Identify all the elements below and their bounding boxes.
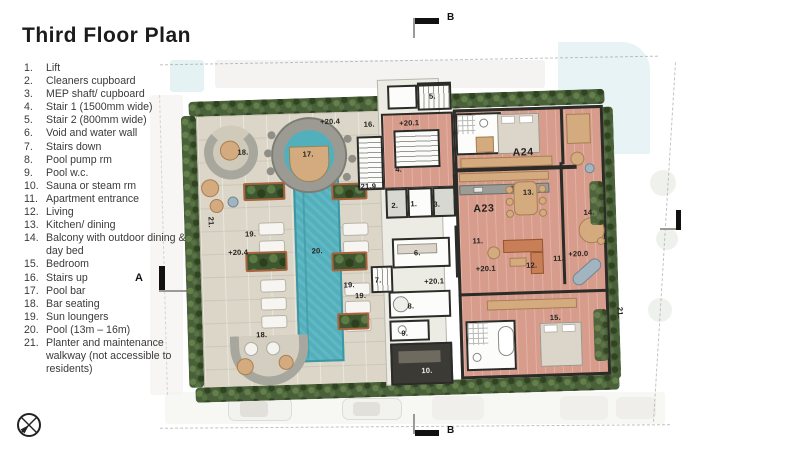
- room-number-label: +20.4: [228, 248, 248, 258]
- room-number-label: 7.: [375, 275, 382, 284]
- room-number-label: 3.: [433, 200, 440, 209]
- legend-item-number: 1.: [24, 62, 46, 75]
- legend-item: 2.Cleaners cupboard: [24, 75, 196, 88]
- room-number-label: 12.: [526, 260, 537, 269]
- legend-item-number: 9.: [24, 167, 46, 180]
- room-number-label: 19.: [245, 229, 256, 238]
- legend-item-text: Void and water wall: [46, 127, 196, 140]
- room-number-label: 18.: [237, 147, 248, 156]
- legend-item-number: 6.: [24, 127, 46, 140]
- section-cut-bar: [415, 18, 439, 24]
- room-number-label: 6.: [414, 248, 421, 257]
- room-number-label: 19.: [355, 291, 366, 300]
- room-number-label: 21.: [616, 307, 625, 318]
- room-number-label: 14.: [583, 208, 594, 217]
- room-number-label: 17.: [302, 149, 313, 158]
- legend-item: 19.Sun loungers: [24, 311, 196, 324]
- floor-plan-drawing: 18.17.+20.416.+20.15.4.+21.92.1.3.21.19.…: [178, 68, 640, 422]
- legend-item-number: 5.: [24, 114, 46, 127]
- legend-item-number: 12.: [24, 206, 46, 219]
- north-compass-icon: [16, 412, 42, 438]
- room-number-label: 18.: [256, 330, 267, 339]
- legend-item-text: Bar seating: [46, 298, 196, 311]
- legend-item-number: 18.: [24, 298, 46, 311]
- room-number-label: 1.: [410, 199, 417, 208]
- room-number-label: +20.1: [399, 118, 419, 128]
- legend-item-number: 19.: [24, 311, 46, 324]
- room-number-label: +21.9: [356, 182, 376, 192]
- legend-item-number: 13.: [24, 219, 46, 232]
- legend-item-number: 7.: [24, 141, 46, 154]
- legend-item-text: Pool pump rm: [46, 154, 196, 167]
- legend-item-text: Living: [46, 206, 196, 219]
- legend-item-number: 11.: [24, 193, 46, 206]
- legend-item-text: Kitchen/ dining: [46, 219, 196, 232]
- apartment-label: A24: [512, 146, 533, 159]
- legend-item-text: Stair 2 (800mm wide): [46, 114, 196, 127]
- room-number-label: 11.: [472, 236, 483, 245]
- room-number-label: 11.: [553, 254, 564, 263]
- legend-item: 3.MEP shaft/ cupboard: [24, 88, 196, 101]
- legend-item-text: Cleaners cupboard: [46, 75, 196, 88]
- legend-item-number: 3.: [24, 88, 46, 101]
- legend-item-text: Lift: [46, 62, 196, 75]
- legend-item: 21.Planter and maintenance walkway (not …: [24, 337, 196, 376]
- room-number-label: 4.: [395, 165, 402, 174]
- legend-item: 11.Apartment entrance: [24, 193, 196, 206]
- section-letter: B: [447, 425, 454, 436]
- legend-item-text: Stair 1 (1500mm wide): [46, 101, 196, 114]
- legend-item-number: 16.: [24, 272, 46, 285]
- room-number-label: 19.: [344, 280, 355, 289]
- section-marker-a-right: [660, 208, 690, 234]
- legend-item-number: 15.: [24, 258, 46, 271]
- legend-item: 8.Pool pump rm: [24, 154, 196, 167]
- room-number-label: 9.: [401, 329, 408, 338]
- apartment-label: A23: [473, 202, 494, 215]
- legend-item-number: 8.: [24, 154, 46, 167]
- section-letter: B: [447, 12, 454, 23]
- room-number-label: 15.: [550, 313, 561, 322]
- legend-item: 4.Stair 1 (1500mm wide): [24, 101, 196, 114]
- plan-labels-layer: 18.17.+20.416.+20.15.4.+21.92.1.3.21.19.…: [178, 68, 640, 422]
- legend-item-number: 14.: [24, 232, 46, 245]
- legend-item: 13.Kitchen/ dining: [24, 219, 196, 232]
- legend-item: 10.Sauna or steam rm: [24, 180, 196, 193]
- legend-item-number: 10.: [24, 180, 46, 193]
- legend: 1.Lift2.Cleaners cupboard3.MEP shaft/ cu…: [24, 62, 196, 376]
- legend-item-number: 20.: [24, 324, 46, 337]
- section-cut-line: [159, 290, 187, 292]
- section-cut-bar: [676, 210, 681, 230]
- section-letter: A: [135, 272, 143, 284]
- legend-item: 7.Stairs down: [24, 141, 196, 154]
- room-number-label: +20.0: [568, 249, 588, 259]
- room-number-label: 13.: [523, 188, 534, 197]
- legend-item: 20.Pool (13m – 16m): [24, 324, 196, 337]
- legend-item-number: 21.: [24, 337, 46, 350]
- section-marker-b-bottom: B: [405, 412, 457, 440]
- legend-item-text: Sauna or steam rm: [46, 180, 196, 193]
- section-cut-bar: [415, 430, 439, 436]
- legend-item-text: Sun loungers: [46, 311, 196, 324]
- room-number-label: 16.: [364, 120, 375, 129]
- section-marker-a-left: A: [135, 266, 191, 296]
- page-title: Third Floor Plan: [22, 24, 191, 48]
- room-number-label: 2.: [391, 201, 398, 210]
- legend-item-text: Pool w.c.: [46, 167, 196, 180]
- legend-item: 18.Bar seating: [24, 298, 196, 311]
- legend-item: 1.Lift: [24, 62, 196, 75]
- room-number-label: 8.: [407, 301, 414, 310]
- legend-item-number: 2.: [24, 75, 46, 88]
- section-cut-bar: [159, 266, 165, 292]
- room-number-label: 20.: [311, 246, 322, 255]
- room-number-label: 21.: [207, 217, 216, 228]
- legend-item: 12.Living: [24, 206, 196, 219]
- legend-item: 5.Stair 2 (800mm wide): [24, 114, 196, 127]
- adjacent-trees-right: [650, 170, 676, 196]
- legend-item-number: 4.: [24, 101, 46, 114]
- legend-item-text: Pool (13m – 16m): [46, 324, 196, 337]
- legend-item-text: Apartment entrance: [46, 193, 196, 206]
- floor-plan-sheet: Third Floor Plan 1.Lift2.Cleaners cupboa…: [0, 0, 800, 450]
- room-number-label: 10.: [421, 366, 432, 375]
- legend-item-number: 17.: [24, 285, 46, 298]
- legend-item-text: Planter and maintenance walkway (not acc…: [46, 337, 196, 376]
- legend-item: 14.Balcony with outdoor dining & day bed: [24, 232, 196, 258]
- legend-item-text: Balcony with outdoor dining & day bed: [46, 232, 196, 258]
- room-number-label: +20.1: [476, 264, 496, 274]
- legend-item: 6.Void and water wall: [24, 127, 196, 140]
- room-number-label: 5.: [429, 92, 436, 101]
- room-number-label: +20.4: [320, 117, 340, 127]
- legend-item: 9.Pool w.c.: [24, 167, 196, 180]
- room-number-label: +20.1: [424, 276, 444, 286]
- legend-item-text: Stairs down: [46, 141, 196, 154]
- section-marker-b-top: B: [405, 10, 457, 38]
- legend-item-text: MEP shaft/ cupboard: [46, 88, 196, 101]
